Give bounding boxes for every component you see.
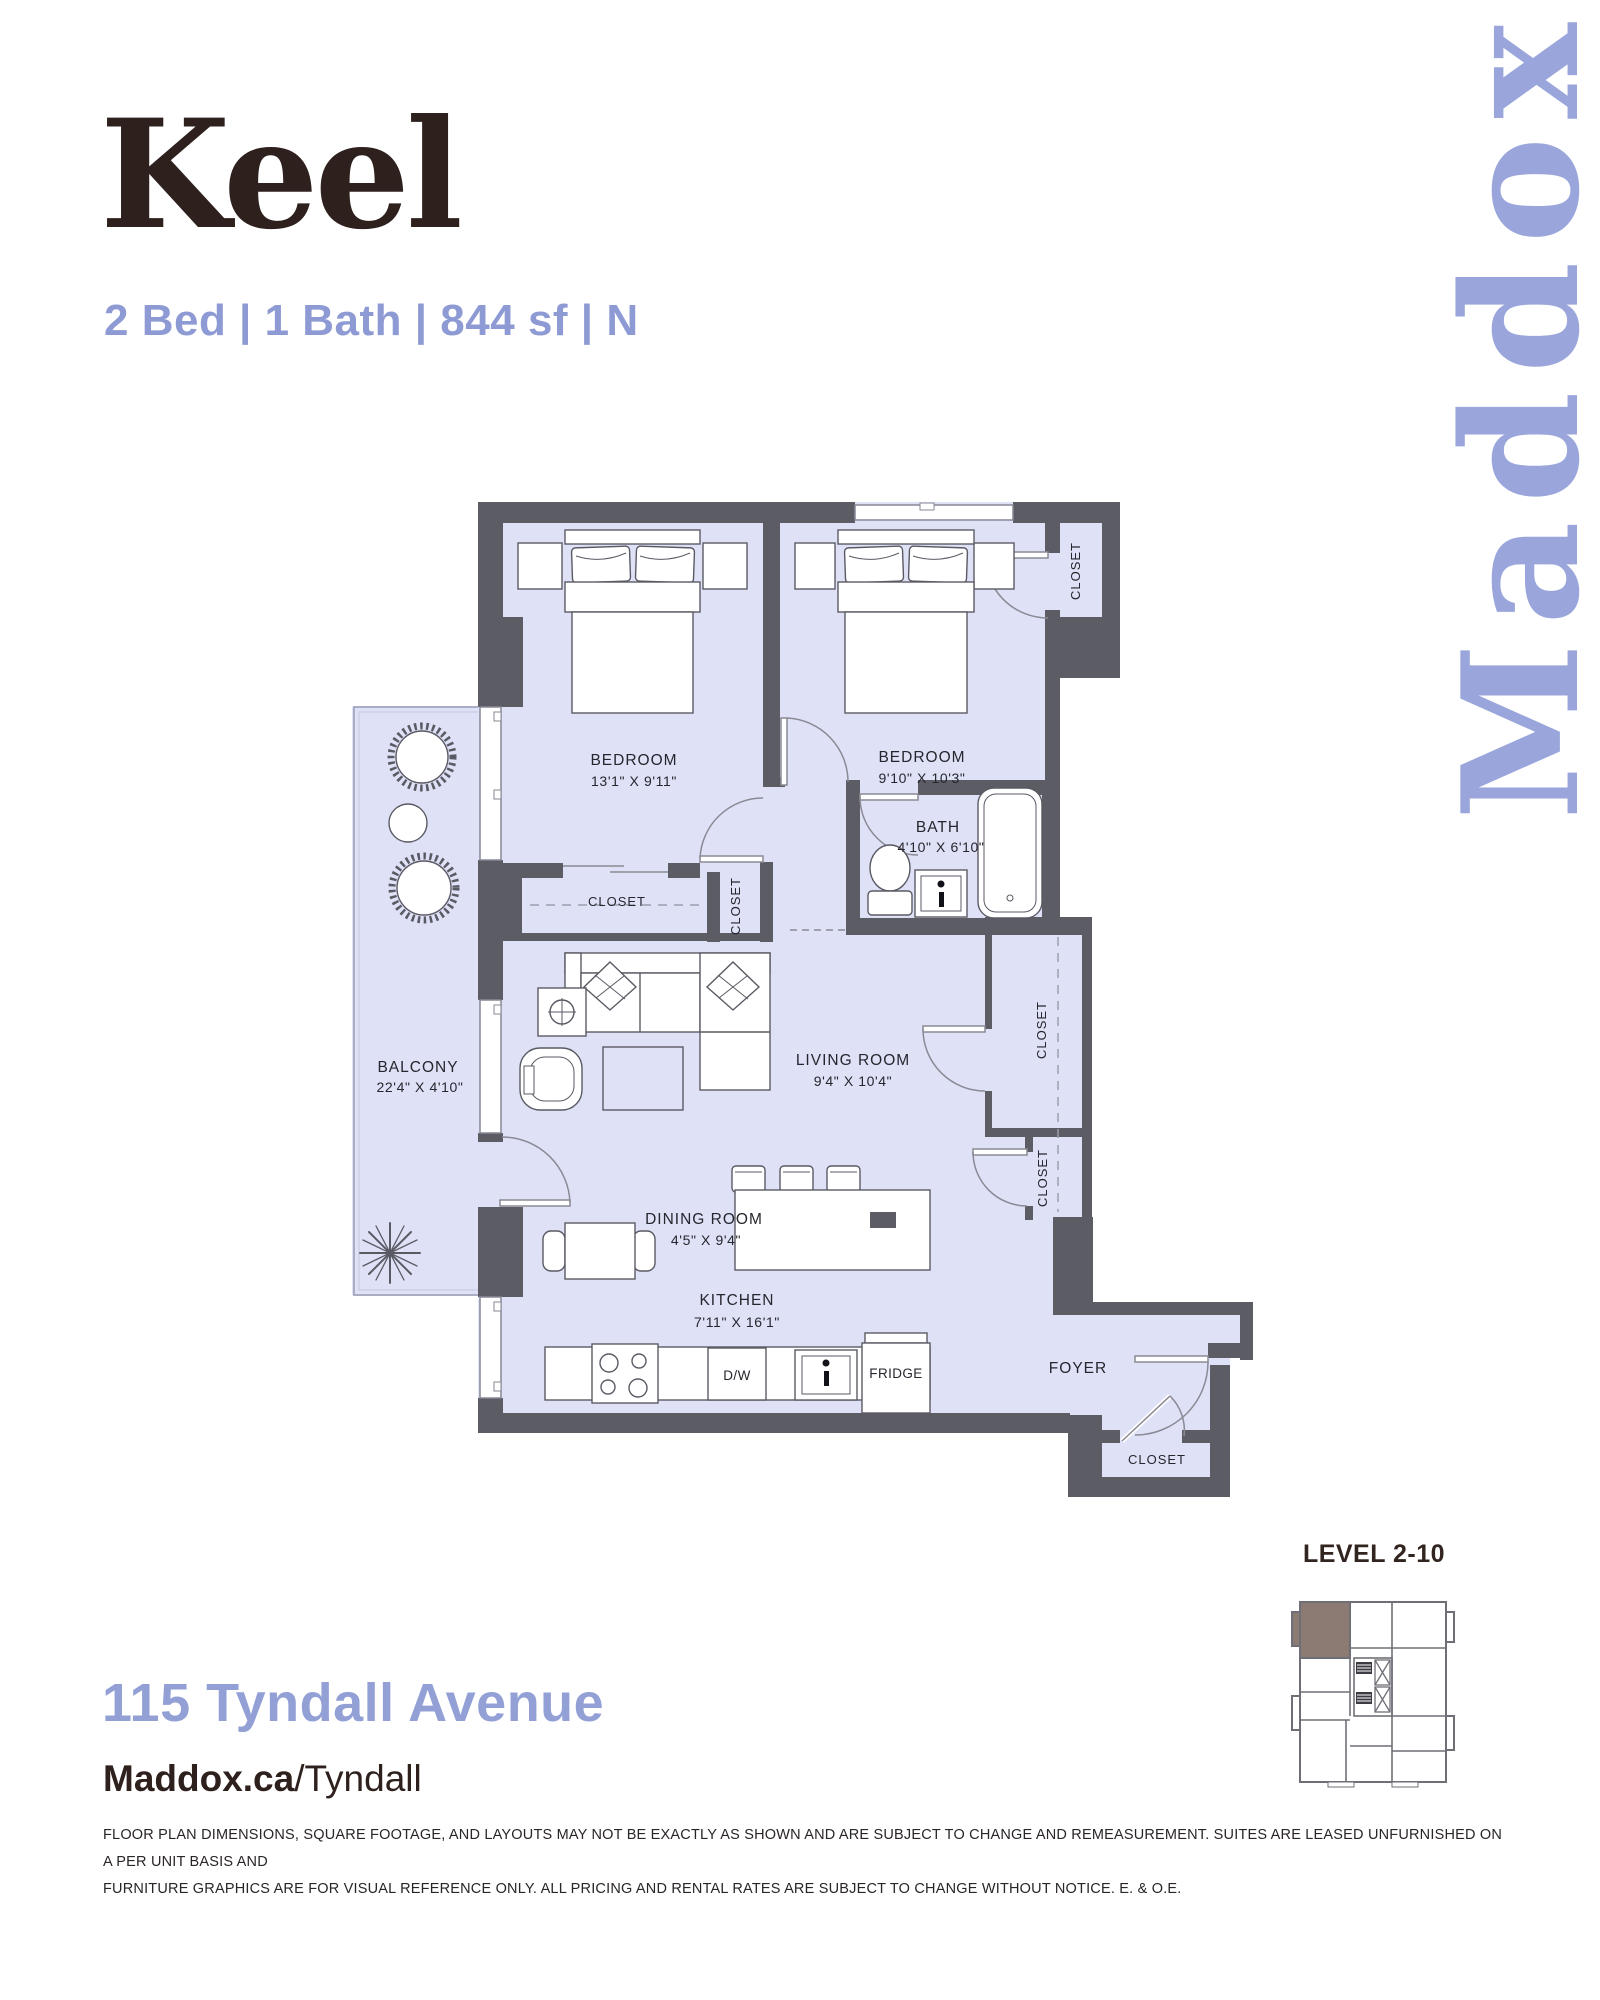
room-dims-living-room: 9'4" X 10'4"	[814, 1073, 893, 1089]
room-label-kitchen: KITCHEN	[699, 1292, 774, 1309]
closet-label-hall: CLOSET	[728, 877, 743, 935]
star-plant	[360, 1223, 420, 1283]
fridge-label: FRIDGE	[869, 1366, 922, 1381]
room-label-balcony: BALCONY	[377, 1059, 458, 1076]
room-label-foyer: FOYER	[1049, 1360, 1107, 1377]
page-title: Keel	[100, 100, 459, 250]
closet-label-living-1: CLOSET	[1034, 1001, 1049, 1059]
room-dims-kitchen: 7'11" X 16'1"	[694, 1314, 780, 1330]
keyplan-level-label: LEVEL 2-10	[1288, 1540, 1460, 1569]
room-label-dining-room: DINING ROOM	[645, 1211, 763, 1228]
unit-summary: 2 Bed | 1 Bath | 844 sf | N	[104, 296, 639, 346]
disclaimer-line-2: FURNITURE GRAPHICS ARE FOR VISUAL REFERE…	[103, 1876, 1503, 1903]
room-label-bedroom-1: BEDROOM	[590, 752, 677, 769]
maddox-watermark: Maddox	[1436, 52, 1600, 820]
website-url: Maddox.ca/Tyndall	[103, 1758, 422, 1800]
room-dims-bedroom-1: 13'1" X 9'11"	[591, 773, 677, 789]
armchair	[520, 1048, 582, 1110]
dishwasher-label: D/W	[723, 1368, 750, 1383]
room-dims-dining-room: 4'5" X 9'4"	[671, 1232, 741, 1248]
disclaimer-line-1: FLOOR PLAN DIMENSIONS, SQUARE FOOTAGE, A…	[103, 1822, 1503, 1876]
disclaimer: FLOOR PLAN DIMENSIONS, SQUARE FOOTAGE, A…	[103, 1822, 1503, 1903]
closet-label-bedroom-2: CLOSET	[1068, 542, 1083, 600]
room-label-bedroom-2: BEDROOM	[878, 749, 965, 766]
keyplan-unit-highlight	[1292, 1602, 1350, 1658]
side-table	[538, 988, 586, 1036]
toilet	[868, 845, 912, 915]
room-dims-bath: 4'10" X 6'10"	[898, 839, 985, 855]
room-label-living-room: LIVING ROOM	[796, 1052, 910, 1069]
keyplan	[1288, 1596, 1460, 1791]
website-domain: Maddox.ca	[103, 1758, 294, 1799]
bathtub	[978, 788, 1042, 918]
closet-label-living-2: CLOSET	[1035, 1149, 1050, 1207]
room-dims-bedroom-2: 9'10" X 10'3"	[879, 770, 966, 786]
address: 115 Tyndall Avenue	[102, 1672, 604, 1734]
closet-label-bedroom-1: CLOSET	[588, 894, 646, 909]
closet-label-foyer: CLOSET	[1128, 1452, 1186, 1467]
kitchen-sink	[795, 1350, 857, 1400]
floor-plan: BEDROOM 13'1" X 9'11" BEDROOM 9'10" X 10…	[340, 488, 1265, 1518]
floorplan-sheet: Keel 2 Bed | 1 Bath | 844 sf | N Maddox	[0, 0, 1600, 2000]
room-dims-balcony: 22'4" X 4'10"	[377, 1079, 464, 1095]
room-label-bath: BATH	[916, 819, 960, 836]
dining-set	[543, 1223, 655, 1279]
bath-sink	[915, 870, 967, 917]
website-path: /Tyndall	[294, 1758, 422, 1799]
